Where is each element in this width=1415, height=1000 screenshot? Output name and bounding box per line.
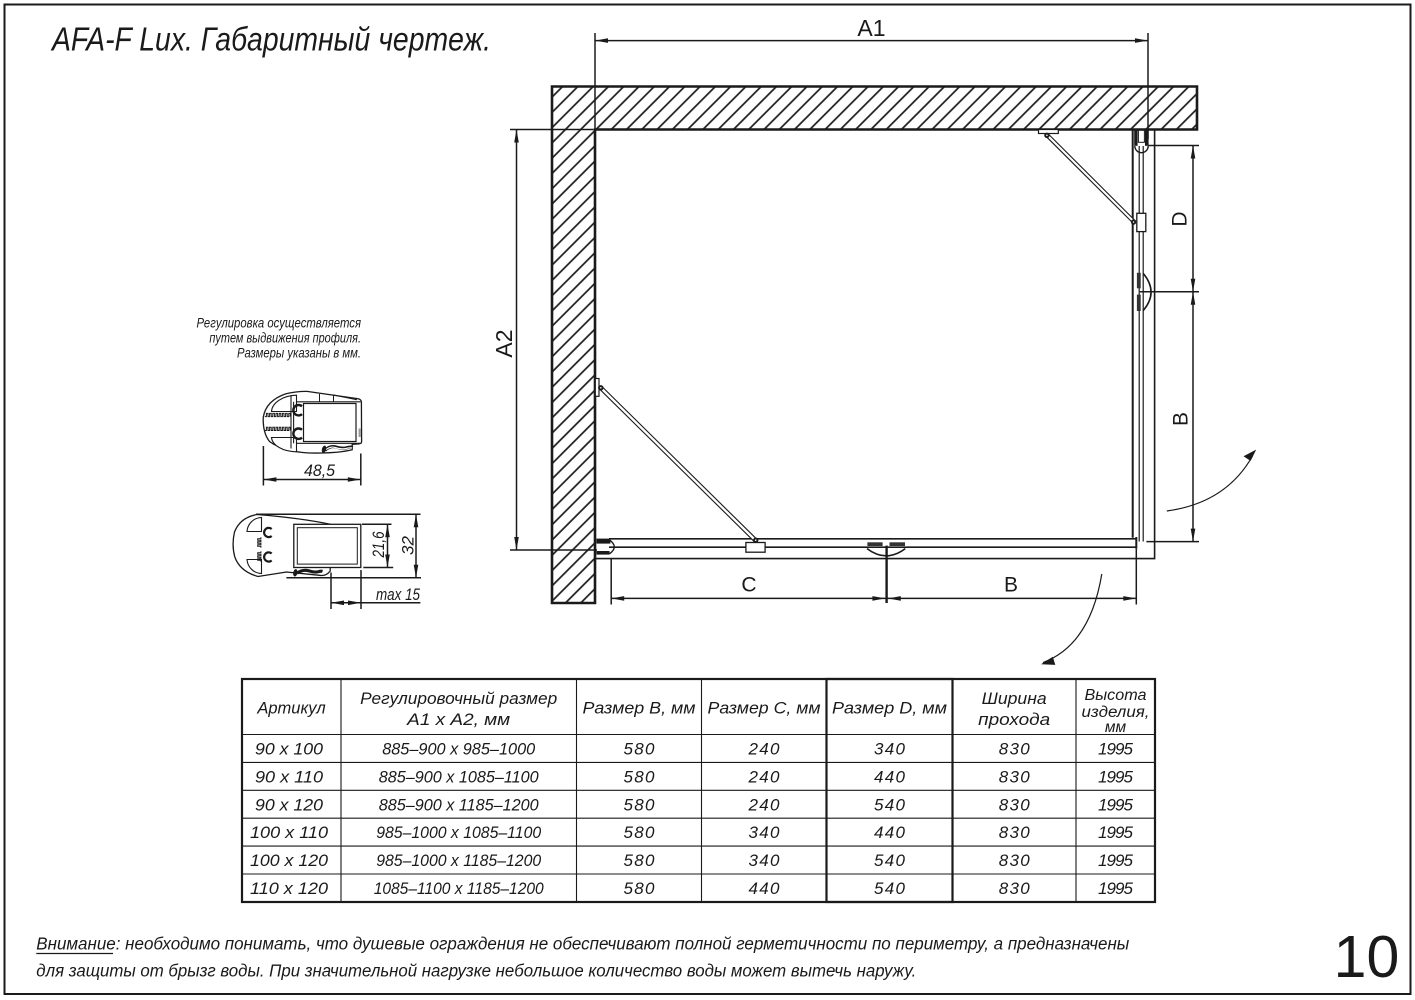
svg-text:580: 580 xyxy=(624,767,656,786)
svg-text:Внимание: необходимо понимать,: Внимание: необходимо понимать, что душев… xyxy=(36,934,1129,954)
svg-text:B: B xyxy=(1004,574,1018,597)
svg-text:540: 540 xyxy=(874,795,906,814)
svg-text:540: 540 xyxy=(874,879,906,898)
svg-text:885–900 х 1085–1100: 885–900 х 1085–1100 xyxy=(379,767,540,786)
svg-text:Размеры указаны в мм.: Размеры указаны в мм. xyxy=(237,344,361,360)
svg-text:440: 440 xyxy=(749,879,781,898)
svg-text:240: 240 xyxy=(748,767,781,786)
svg-text:240: 240 xyxy=(748,795,781,814)
svg-text:540: 540 xyxy=(874,851,906,870)
svg-text:Ширина: Ширина xyxy=(982,690,1047,708)
svg-text:для защиты от брызг воды. При: для защиты от брызг воды. При значительн… xyxy=(36,961,916,981)
svg-text:830: 830 xyxy=(999,795,1031,814)
svg-text:90 х 100: 90 х 100 xyxy=(255,740,324,759)
svg-text:885–900 х 985–1000: 885–900 х 985–1000 xyxy=(382,740,536,759)
svg-text:1995: 1995 xyxy=(1098,795,1134,814)
svg-text:100 х 120: 100 х 120 xyxy=(250,851,329,870)
svg-text:32: 32 xyxy=(399,536,418,555)
svg-text:440: 440 xyxy=(874,767,906,786)
svg-text:Размер D, мм: Размер D, мм xyxy=(832,700,947,718)
svg-text:max 15: max 15 xyxy=(376,585,420,604)
svg-text:90 х 120: 90 х 120 xyxy=(255,795,324,814)
svg-text:Размер С, мм: Размер С, мм xyxy=(708,700,821,718)
svg-text:830: 830 xyxy=(999,823,1031,842)
svg-text:10: 10 xyxy=(1334,924,1400,990)
svg-text:1995: 1995 xyxy=(1098,767,1134,786)
svg-text:A1: A1 xyxy=(857,15,885,41)
svg-text:985–1000 х 1185–1200: 985–1000 х 1185–1200 xyxy=(376,851,541,870)
svg-text:D: D xyxy=(1169,211,1192,226)
svg-text:Артикул: Артикул xyxy=(256,700,325,718)
svg-text:AFA-F Lux. Габаритный чертеж.: AFA-F Lux. Габаритный чертеж. xyxy=(50,21,491,58)
svg-text:830: 830 xyxy=(999,851,1031,870)
svg-text:830: 830 xyxy=(999,740,1031,759)
svg-text:885–900 х 1185–1200: 885–900 х 1185–1200 xyxy=(379,795,540,814)
svg-text:C: C xyxy=(741,574,756,597)
svg-text:340: 340 xyxy=(749,851,781,870)
svg-text:100 х 110: 100 х 110 xyxy=(250,823,329,842)
svg-text:путем выдвижения профиля.: путем выдвижения профиля. xyxy=(209,330,361,346)
svg-text:мм: мм xyxy=(1105,719,1127,736)
svg-text:21,6: 21,6 xyxy=(369,531,388,558)
svg-text:580: 580 xyxy=(624,851,656,870)
svg-text:А1 х А2, мм: А1 х А2, мм xyxy=(406,711,510,729)
svg-text:1995: 1995 xyxy=(1098,879,1134,898)
svg-text:340: 340 xyxy=(749,823,781,842)
svg-text:240: 240 xyxy=(748,740,781,759)
svg-text:580: 580 xyxy=(624,879,656,898)
svg-text:1995: 1995 xyxy=(1098,740,1134,759)
svg-text:580: 580 xyxy=(624,740,656,759)
svg-text:Размер В, мм: Размер В, мм xyxy=(583,700,696,718)
svg-text:90 х 110: 90 х 110 xyxy=(255,767,324,786)
svg-text:340: 340 xyxy=(874,740,906,759)
svg-text:прохода: прохода xyxy=(978,711,1050,729)
svg-text:Регулировочный размер: Регулировочный размер xyxy=(360,690,557,708)
svg-text:Высота: Высота xyxy=(1085,687,1147,704)
svg-text:1085–1100 х 1185–1200: 1085–1100 х 1185–1200 xyxy=(374,879,544,898)
svg-text:1995: 1995 xyxy=(1098,851,1134,870)
svg-text:830: 830 xyxy=(999,767,1031,786)
svg-text:Регулировка осуществляется: Регулировка осуществляется xyxy=(197,315,362,331)
svg-text:A2: A2 xyxy=(491,329,517,357)
svg-text:1995: 1995 xyxy=(1098,823,1134,842)
svg-text:580: 580 xyxy=(624,795,656,814)
svg-text:580: 580 xyxy=(624,823,656,842)
svg-text:830: 830 xyxy=(999,879,1031,898)
svg-text:B: B xyxy=(1170,412,1193,426)
svg-text:110 х 120: 110 х 120 xyxy=(250,879,329,898)
svg-text:440: 440 xyxy=(874,823,906,842)
svg-text:985–1000 х 1085–1100: 985–1000 х 1085–1100 xyxy=(376,823,541,842)
svg-text:48,5: 48,5 xyxy=(304,461,336,480)
